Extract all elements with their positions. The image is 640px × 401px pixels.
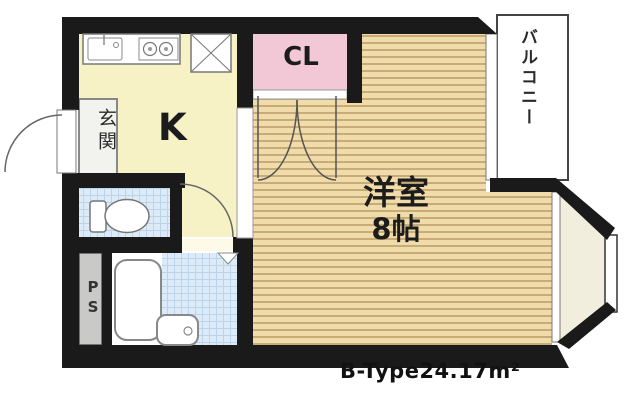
toilet-bowl	[105, 200, 149, 233]
pipe-space-label: PS	[78, 278, 102, 318]
bay-outer-window	[605, 235, 617, 312]
bath-door-opening	[182, 239, 233, 251]
entrance-label: 玄関	[93, 108, 120, 154]
closet-label: CL	[272, 42, 330, 72]
washbasin-drain-icon	[184, 327, 192, 335]
wall-toilet-bottom	[62, 237, 182, 253]
balcony-label: バルコニー	[515, 28, 540, 128]
bathtub	[115, 260, 161, 340]
wall-toilet-top	[62, 173, 185, 188]
stove-burner-left-center	[148, 47, 152, 51]
wall-left-upper	[62, 17, 79, 110]
wall-closet-right-post	[347, 34, 362, 103]
kitchen-sink	[88, 38, 122, 60]
toilet-tank	[90, 201, 106, 232]
wall-ps-bath-divider	[102, 253, 112, 345]
unit-type-area-label: B-Type24.17m²	[340, 359, 520, 383]
entrance-door-swing-arc	[5, 115, 62, 172]
wall-bath-door-post	[233, 237, 253, 253]
wall-left-lower	[62, 173, 79, 368]
balcony-window	[486, 34, 497, 180]
entrance-door-leaf	[57, 110, 76, 173]
kitchen-label: K	[158, 106, 187, 149]
wall-top	[62, 17, 497, 34]
stove-burner-right-center	[164, 47, 168, 51]
bay-inner-window	[552, 192, 560, 342]
western-room-size-label: 8帖	[336, 206, 456, 248]
wall-bath-room-divider	[237, 253, 253, 345]
kitchen-room-sliding-door	[237, 108, 253, 238]
wall-kitchen-room-upper	[237, 34, 253, 108]
closet-sill	[253, 90, 347, 99]
floor-plan: K CL 洋室 8帖 玄関 バルコニー PS B-Type24.17m²	[0, 0, 640, 401]
